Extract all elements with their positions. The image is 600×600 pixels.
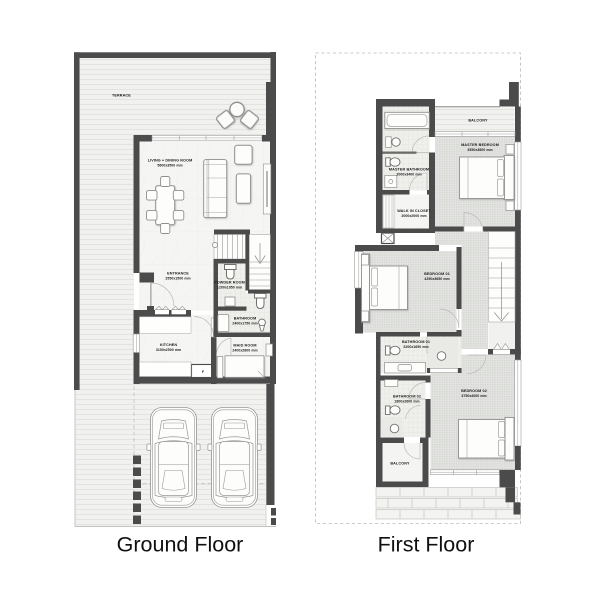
svg-text:2550x1500 mm: 2550x1500 mm <box>165 277 190 281</box>
svg-text:MASTER BATHROOM: MASTER BATHROOM <box>389 168 429 172</box>
svg-text:First Floor: First Floor <box>378 533 475 557</box>
svg-text:3200x1650 mm: 3200x1650 mm <box>403 345 428 349</box>
svg-text:BATHROOM 01: BATHROOM 01 <box>402 340 430 344</box>
svg-text:1800x2600 mm: 1800x2600 mm <box>394 399 419 403</box>
svg-text:BEDROOM 02: BEDROOM 02 <box>461 389 487 393</box>
svg-text:5600x3500 mm: 5600x3500 mm <box>157 164 182 168</box>
svg-text:POWDER ROOM: POWDER ROOM <box>214 281 245 285</box>
svg-text:3150x2500 mm: 3150x2500 mm <box>156 348 181 352</box>
svg-text:LIVING + DINING ROOM: LIVING + DINING ROOM <box>148 159 193 163</box>
svg-text:MAID ROOM: MAID ROOM <box>233 344 256 348</box>
svg-text:ENTRANCE: ENTRANCE <box>167 272 189 276</box>
svg-text:2400x2800 mm: 2400x2800 mm <box>232 349 257 353</box>
svg-text:2000x3400 mm: 2000x3400 mm <box>396 173 421 177</box>
svg-text:BALCONY: BALCONY <box>468 119 488 123</box>
svg-text:BALCONY: BALCONY <box>390 462 410 466</box>
svg-text:MASTER BEDROOM: MASTER BEDROOM <box>461 143 499 147</box>
svg-text:1200x1950 mm: 1200x1950 mm <box>217 286 242 290</box>
svg-text:BATHROOM: BATHROOM <box>234 317 257 321</box>
svg-text:Ground Floor: Ground Floor <box>117 533 244 557</box>
svg-text:BATHROOM 02: BATHROOM 02 <box>393 395 421 399</box>
svg-text:WALK IN CLOSET: WALK IN CLOSET <box>397 209 431 213</box>
svg-text:2000x2000 mm: 2000x2000 mm <box>401 214 426 218</box>
svg-text:2400x1750 mm: 2400x1750 mm <box>232 322 257 326</box>
svg-text:3750x4000 mm: 3750x4000 mm <box>461 394 486 398</box>
svg-text:BEDROOM 01: BEDROOM 01 <box>424 272 450 276</box>
svg-text:4250x3650 mm: 4250x3650 mm <box>424 277 449 281</box>
svg-text:TERRACE: TERRACE <box>112 94 131 98</box>
svg-text:KITCHEN: KITCHEN <box>160 343 178 347</box>
svg-text:3550x3800 mm: 3550x3800 mm <box>467 148 492 152</box>
